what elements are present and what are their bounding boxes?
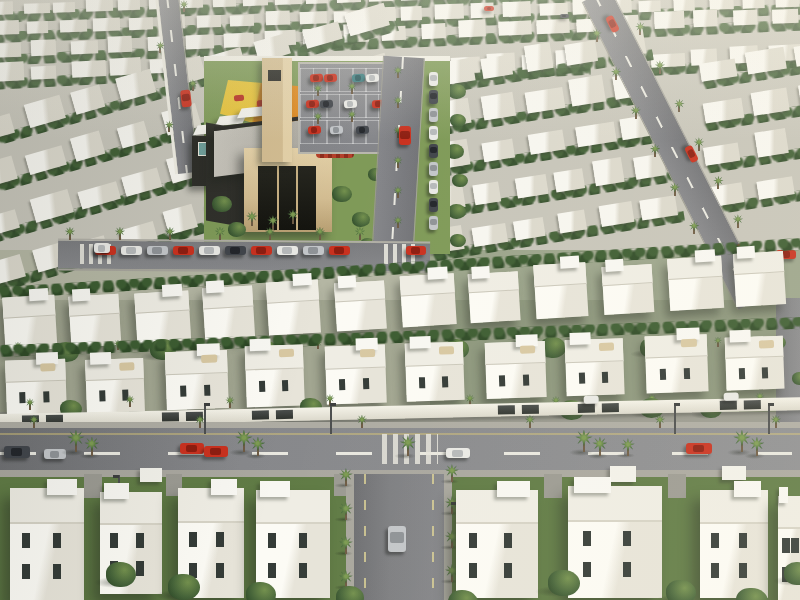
shadow [587,453,608,459]
tree [228,222,246,237]
car-roof [430,183,437,189]
roof-bulkhead [338,276,357,289]
lamp-head [204,403,210,406]
roof-bulkhead [47,479,77,495]
small-house [24,3,51,13]
villa [405,342,465,402]
small-house [422,23,447,39]
window [684,368,690,379]
lamp-head [674,403,680,406]
car-roof [327,75,333,81]
roof-terrace [681,338,697,347]
small-house [26,21,47,34]
gate-pillar [140,468,162,482]
roof-bulkhead [737,246,756,259]
window [299,563,307,578]
car-roof [309,101,315,107]
car [173,246,194,255]
car-roof [308,247,317,253]
window [583,531,591,546]
tower-window [268,70,281,81]
small-house [230,15,254,27]
small-house [772,8,799,24]
villa [68,294,121,348]
small-house [60,20,87,33]
crosswalk [382,434,438,464]
window [299,533,307,548]
car [484,6,494,11]
villa [533,263,588,320]
car [429,162,438,176]
small-house [213,0,236,7]
window [43,391,49,402]
tree [448,84,466,99]
roof-terrace [201,354,217,363]
window [22,564,30,579]
play-equipment [234,95,244,102]
small-house [558,210,588,233]
villa [134,290,191,343]
roof-bulkhead [729,329,750,342]
small-house [31,39,57,57]
window [216,532,224,547]
car [310,74,324,83]
car [352,74,366,83]
car [147,246,168,255]
small-house [401,5,422,20]
roof-bulkhead [471,266,490,279]
car-roof [178,247,187,253]
lane-edge [432,474,434,600]
car [121,246,142,255]
window [739,368,745,379]
villa [325,344,387,404]
small-house [86,0,113,12]
car-roof [369,75,375,81]
tree [352,212,370,227]
car-roof [430,219,437,225]
car-roof [400,131,409,139]
tree [450,234,466,247]
window [53,564,61,579]
car [429,72,438,86]
small-house [568,75,607,107]
driveway [668,474,686,498]
small-house [498,21,532,36]
small-house [536,19,569,34]
roof-bulkhead [779,487,788,503]
tree [784,562,800,585]
car-roof [430,201,437,207]
car [180,443,204,454]
car [686,443,712,454]
small-house [733,9,757,25]
garage-gate [602,403,619,412]
car-roof [359,127,365,133]
car [429,216,438,230]
car [251,246,272,255]
small-house [480,92,516,120]
roof-bulkhead [206,281,225,294]
street-lamp [330,404,332,434]
small-house [243,0,269,6]
small-house [129,18,153,31]
car-roof [430,111,437,117]
roof-bulkhead [249,339,270,352]
car-roof [390,532,404,543]
car-roof [11,448,22,456]
small-house [0,43,22,58]
roof-bulkhead [260,481,290,497]
small-house [458,19,486,38]
small-house [472,181,501,205]
villa [733,251,786,307]
car-roof [311,127,317,133]
window [442,376,448,387]
gate-pillar [610,466,636,482]
car [429,198,438,212]
small-house [754,128,789,157]
window [469,533,477,548]
aerial-render-scene [0,0,800,600]
car-roof [230,247,239,253]
car [330,126,344,135]
window [469,563,477,578]
villa [165,350,229,410]
tree [450,114,466,127]
car [329,246,350,255]
car-roof [608,19,616,28]
window [204,384,210,395]
car [306,100,320,109]
lamp-head [113,475,119,478]
small-house [186,34,215,49]
car [429,90,438,104]
sidewalk [346,474,354,600]
window [739,563,747,578]
window [739,533,747,548]
car [560,14,569,18]
window [504,563,512,578]
roof-bulkhead [162,284,182,297]
window [711,563,719,578]
small-house [196,15,221,28]
window [296,166,298,230]
tree [106,562,136,587]
villa [245,345,305,408]
car [429,144,438,158]
roof-terrace [758,340,773,349]
car-roof [282,247,291,253]
window [268,563,276,578]
window [268,533,276,548]
roof-terrace [360,349,376,358]
driveway [544,474,562,498]
car-roof [430,147,437,153]
window [419,377,425,388]
shadow [744,453,765,459]
window [762,367,768,378]
small-house [434,3,464,19]
car-roof [323,101,329,107]
car-roof [347,101,353,107]
small-house [654,10,685,29]
window [259,381,265,392]
car [446,448,470,458]
window [523,374,529,385]
roof-bulkhead [574,477,612,493]
street-lamp [674,404,676,434]
car [199,246,220,255]
shadow [245,453,266,459]
lane-edge [364,474,366,600]
car [277,246,298,255]
roof-bulkhead [427,266,447,279]
car-roof [333,127,339,133]
garage-gate [744,400,761,409]
roof-bulkhead [72,289,91,302]
window [791,538,799,553]
villa-foreground [568,486,662,598]
roof-bulkhead [497,481,530,497]
car [324,74,338,83]
villa [266,280,321,336]
window [504,533,512,548]
car-roof [452,450,463,457]
car-roof [430,75,437,81]
small-house [118,0,141,11]
villa [565,339,625,397]
car-roof [204,247,213,253]
car-roof [430,129,437,135]
car-roof [430,93,437,99]
tree [666,580,696,600]
tree [168,574,200,600]
small-house [0,61,25,81]
roof-bulkhead [605,259,624,272]
villa [85,358,145,413]
small-house [53,2,75,12]
lamp-head [768,403,774,406]
window [282,380,288,391]
roof-terrace [119,362,134,371]
roof-bulkhead [104,483,129,499]
window [339,379,345,390]
garage-gate [276,410,293,419]
tree [548,570,580,596]
garage-gate [162,412,179,421]
small-house [0,1,13,15]
small-house [30,66,56,80]
car [429,180,438,194]
villa [485,341,547,399]
car-roof [98,245,105,252]
tree [448,204,466,219]
villa [667,256,724,311]
car [584,395,599,403]
small-house [794,41,800,67]
villa-foreground [256,490,330,598]
car [429,126,438,140]
window [711,533,719,548]
villa [5,359,67,416]
small-house [502,1,531,17]
window [53,533,61,548]
small-house [93,18,120,32]
villa [725,335,785,390]
car-roof [256,247,265,253]
car [388,526,406,552]
car-roof [411,247,420,253]
small-house [72,60,106,78]
car-roof [210,448,221,456]
car [366,74,380,83]
car [204,446,228,457]
car-roof [186,445,197,453]
small-house [592,157,624,186]
car [344,100,358,109]
roof-terrace [598,343,613,352]
tree [452,174,468,187]
roof-terrace [40,363,56,372]
shadow [79,453,100,459]
roof-terrace [438,346,453,355]
car-roof [355,75,361,81]
small-house [265,10,290,25]
window [623,562,631,577]
garage-gate [578,404,595,413]
car [225,246,246,255]
window [499,375,505,386]
window [19,392,25,403]
car [180,89,192,107]
villa [202,286,255,340]
roof-bulkhead [89,352,110,365]
window [583,562,591,577]
car-roof [487,7,491,11]
car [4,446,30,458]
villa [400,273,457,328]
car-roof [50,451,60,458]
car-roof [693,445,704,453]
window [602,371,608,382]
roof-terrace [278,349,293,358]
roof-bulkhead [569,333,590,346]
villa-foreground [456,490,538,598]
roof-bulkhead [560,256,579,269]
villa [645,334,709,394]
roof-terrace [520,346,536,355]
garage-gate [498,405,515,414]
window [623,531,631,546]
window [22,533,30,548]
small-house [71,40,99,54]
car [320,100,334,109]
small-house [0,20,19,35]
car-roof [430,165,437,171]
window [216,563,224,578]
villa-foreground [700,490,768,598]
small-house [107,36,132,53]
roof-bulkhead [292,273,311,286]
car [429,108,438,122]
window [136,561,144,576]
garage-gate [522,405,539,414]
window [659,369,665,380]
villa [468,271,521,323]
car-roof [152,247,161,253]
window [99,390,105,401]
small-house [523,42,553,72]
car-roof [687,149,695,158]
car-roof [334,247,343,253]
car [356,126,370,135]
window [189,532,197,547]
window [136,533,144,548]
window [180,385,186,396]
roof-bulkhead [734,481,761,497]
villa [334,281,387,332]
car-roof [313,75,319,81]
small-house [651,53,685,68]
car-roof [126,247,135,253]
street-lamp [768,404,770,434]
mosque-entrance [258,166,316,230]
roof-bulkhead [211,479,237,495]
car-roof [182,94,190,102]
roof-bulkhead [409,336,430,349]
window [277,166,279,230]
gate-pillar [722,466,746,480]
villa [602,264,655,315]
car [303,246,324,255]
garage-gate [720,401,737,410]
car [308,126,322,135]
window [782,538,790,553]
window [110,533,118,548]
window [363,379,369,390]
window [579,372,585,383]
car-roof [562,15,566,18]
car [94,243,110,253]
car [724,393,739,401]
car [399,126,411,145]
lamp-head [330,403,336,406]
villa-foreground [10,488,84,600]
garage-gate [252,410,269,419]
small-house [693,9,718,27]
car [406,246,426,255]
roof-bulkhead [29,288,48,301]
roof-bulkhead [695,249,715,262]
